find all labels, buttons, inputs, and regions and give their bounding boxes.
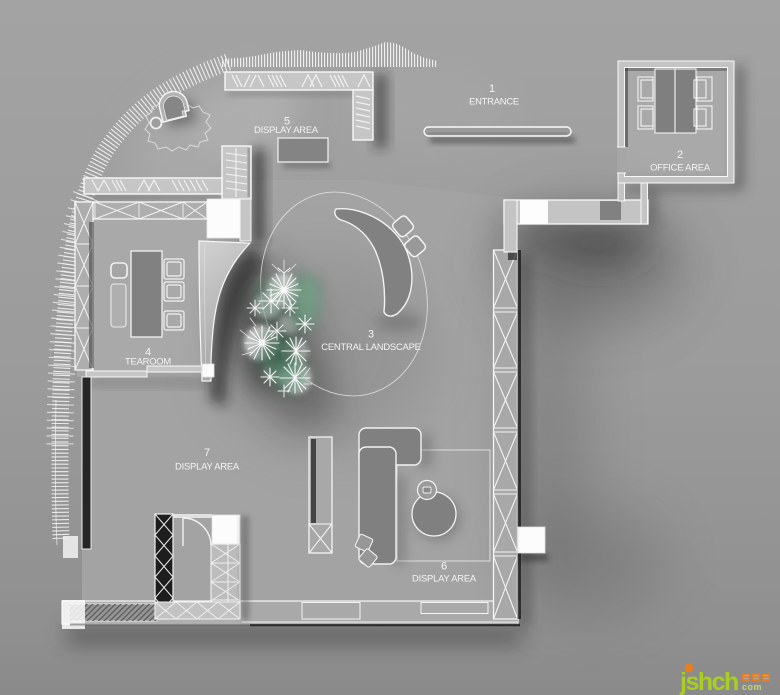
svg-text:DISPLAY AREA: DISPLAY AREA bbox=[175, 461, 240, 472]
svg-text:jshch: jshch bbox=[679, 668, 738, 695]
svg-text:7: 7 bbox=[204, 447, 210, 459]
svg-text:DISPLAY AREA: DISPLAY AREA bbox=[412, 573, 477, 584]
svg-text:DISPLAY AREA: DISPLAY AREA bbox=[254, 124, 319, 135]
svg-text:ENTRANCE: ENTRANCE bbox=[469, 96, 519, 107]
svg-text:com: com bbox=[742, 682, 762, 692]
svg-text:3: 3 bbox=[368, 329, 374, 341]
svg-text:OFFICE AREA: OFFICE AREA bbox=[650, 162, 711, 173]
svg-text:2: 2 bbox=[677, 149, 683, 161]
svg-text:6: 6 bbox=[441, 561, 447, 573]
svg-text:CENTRAL LANDSCAPE: CENTRAL LANDSCAPE bbox=[321, 341, 420, 352]
svg-text:TEAROOM: TEAROOM bbox=[125, 356, 171, 367]
svg-text:1: 1 bbox=[489, 83, 495, 95]
